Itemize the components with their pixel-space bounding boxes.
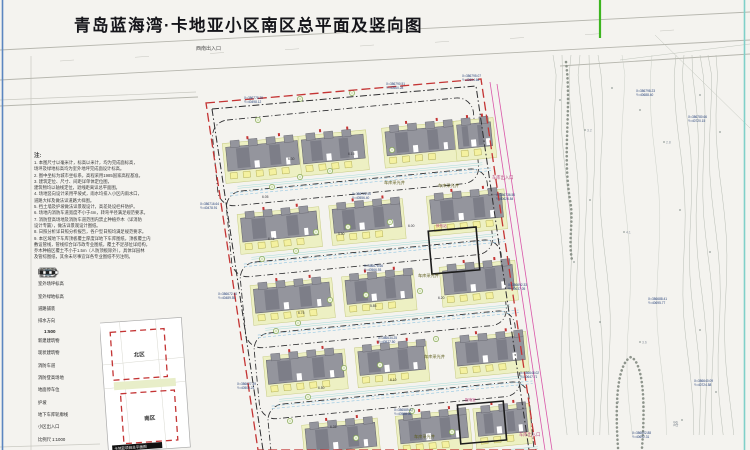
legend-item-label: 比例尺 1:1000 <box>38 437 65 443</box>
svg-text:换热站: 换热站 <box>436 223 447 228</box>
svg-text:6.05: 6.05 <box>262 195 269 199</box>
svg-text:3.6: 3.6 <box>642 341 647 345</box>
legend-item-road-paving: 道路铺装 <box>38 303 130 315</box>
svg-text:Y=40637.05: Y=40637.05 <box>508 287 526 291</box>
svg-text:Y=40556.40: Y=40556.40 <box>352 196 370 200</box>
legend-item-label: 室外场坪标高 <box>38 281 64 287</box>
legend-item-label: 现状建筑物 <box>38 350 59 356</box>
svg-text:6.15: 6.15 <box>348 152 355 156</box>
notes-block: 注: 1. 本图尺寸以毫米计，标高以米计，均为完成面标高， 场坪及绿地标高均为室… <box>34 151 186 261</box>
svg-text:Y=40478.91: Y=40478.91 <box>200 206 218 210</box>
legend-item-label: 排水方向 <box>38 318 55 324</box>
note-line: 及管综图纸，其余未尽事宜详各专业图纸不另注明。 <box>34 254 186 260</box>
svg-text:4.1: 4.1 <box>626 231 631 235</box>
svg-text:6.50: 6.50 <box>318 386 325 390</box>
legend-item-label: 道路铺装 <box>38 306 55 312</box>
svg-text:2.8: 2.8 <box>666 141 671 145</box>
svg-text:车库采光井: 车库采光井 <box>438 182 459 189</box>
svg-text:Y=40489.55: Y=40489.55 <box>218 296 236 300</box>
svg-text:6.20: 6.20 <box>438 296 445 300</box>
svg-text:车库出入口: 车库出入口 <box>519 431 540 438</box>
svg-text:Y=40500.23: Y=40500.23 <box>237 386 255 390</box>
svg-text:Y=40695.77: Y=40695.77 <box>648 301 666 305</box>
svg-text:Y=40498.12: Y=40498.12 <box>244 100 262 104</box>
svg-text:Y=40577.50: Y=40577.50 <box>378 340 396 344</box>
svg-text:路: 路 <box>673 420 679 428</box>
legend-item-label: 地面停车位 <box>38 387 59 393</box>
notes-heading: 注: <box>34 151 186 159</box>
svg-text:西南出入口: 西南出入口 <box>196 45 221 52</box>
legend-item-label: 护坡 <box>38 400 47 406</box>
svg-text:Y=40720.15: Y=40720.15 <box>688 119 706 123</box>
legend-item-elev-green: 6.30室外绿地标高 <box>38 290 130 302</box>
svg-text:配电室: 配电室 <box>465 397 476 402</box>
legend-item-elev-ground: 6.00室外场坪标高 <box>38 278 130 290</box>
key-plan: 北区南区卡地亚项目总平面图 <box>100 316 192 450</box>
legend-item-label: 新建建筑物 <box>38 338 59 344</box>
svg-text:6.35: 6.35 <box>330 425 337 429</box>
svg-text:Y=40588.06: Y=40588.06 <box>394 412 412 416</box>
legend-item-label: 室外绿地标高 <box>38 294 64 300</box>
svg-text:Y=40647.71: Y=40647.71 <box>520 375 538 379</box>
svg-text:车库采光井: 车库采光井 <box>424 353 445 360</box>
svg-text:Y=40560.28: Y=40560.28 <box>386 86 404 90</box>
svg-text:车库出入口: 车库出入口 <box>492 174 513 181</box>
legend-item-label: 消防车道 <box>38 363 55 369</box>
svg-text:车库采光井: 车库采光井 <box>384 179 405 186</box>
svg-text:Y=40688.40: Y=40688.40 <box>636 93 654 97</box>
drawing-title: 青岛蓝海湾·卡地亚小区南区总平面及竖向图 <box>74 12 423 36</box>
svg-text:6.75: 6.75 <box>298 311 305 315</box>
svg-text:5.85: 5.85 <box>370 304 377 308</box>
svg-text:5.90: 5.90 <box>338 232 345 236</box>
drawing-sheet: 3.22.84.13.6换热站配电室X=386778.35Y=40498.12X… <box>0 0 750 450</box>
notes-lines: 1. 本图尺寸以毫米计，标高以米计，均为完成面标高， 场坪及绿地标高均为室外地坪… <box>34 160 186 261</box>
svg-text:6.45: 6.45 <box>268 237 275 241</box>
building-rows <box>222 111 537 450</box>
svg-text:Y=40566.93: Y=40566.93 <box>364 268 382 272</box>
svg-text:车库采光井: 车库采光井 <box>414 433 435 440</box>
legend-item-label: 消防登高场地 <box>38 375 64 381</box>
svg-text:3.2: 3.2 <box>587 129 592 133</box>
svg-text:Y=40692.31: Y=40692.31 <box>632 435 650 439</box>
svg-text:Y=40604.66: Y=40604.66 <box>462 78 480 82</box>
svg-text:6.30: 6.30 <box>288 157 295 161</box>
scale-bar-icon <box>38 267 60 278</box>
svg-text:车库采光井: 车库采光井 <box>418 272 439 279</box>
legend-item-label: 小区出入口 <box>38 424 59 430</box>
svg-text:6.10: 6.10 <box>390 378 397 382</box>
svg-text:Y=40724.58: Y=40724.58 <box>694 383 712 387</box>
svg-text:Y=40626.84: Y=40626.84 <box>496 197 514 201</box>
svg-text:6.00: 6.00 <box>408 224 415 228</box>
legend-item-label: 地下车库轮廓线 <box>38 412 68 418</box>
